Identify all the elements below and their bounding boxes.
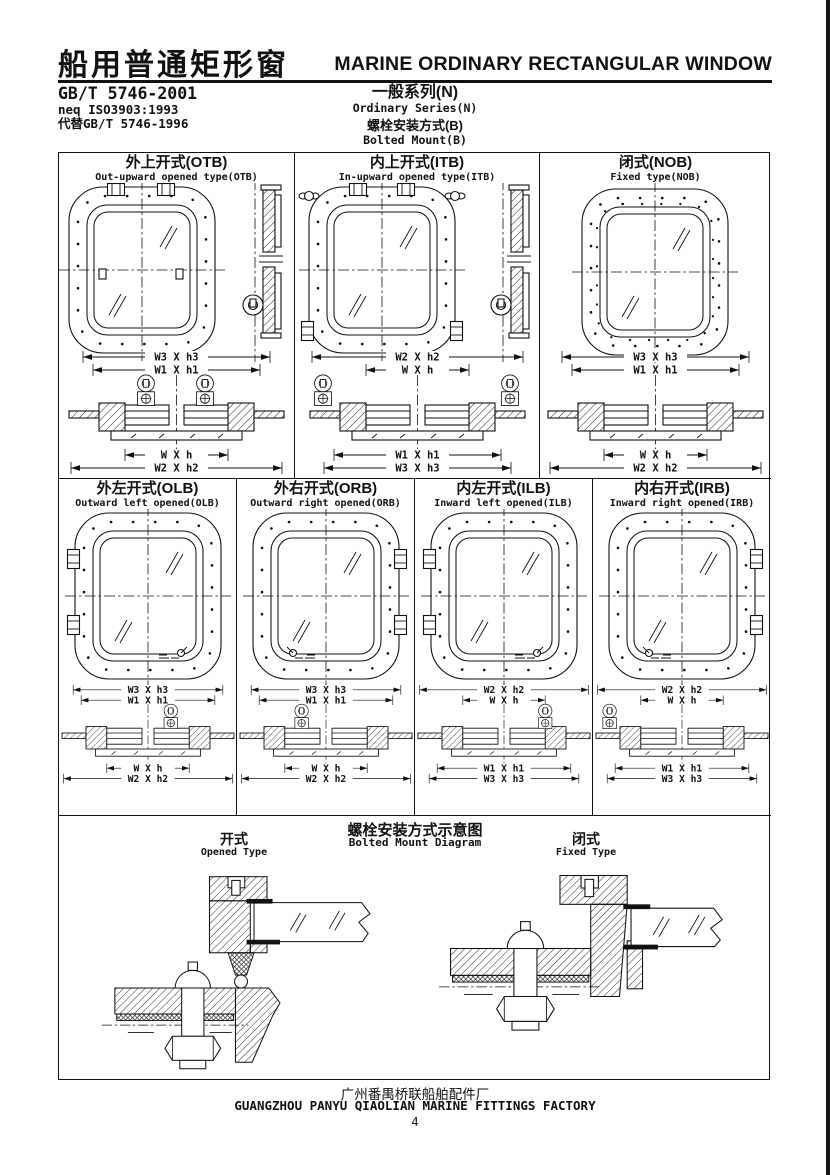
side-hinge-icon xyxy=(751,549,763,568)
dim-label: W3 X h3 xyxy=(484,773,525,784)
section-view: W3 X h3 W1 X h1 W X h W2 X h2 xyxy=(69,351,284,475)
panel-title-en: Outward left opened(OLB) xyxy=(59,498,236,509)
panel-title-en: Outward right opened(ORB) xyxy=(237,498,414,509)
bulkhead-plate xyxy=(115,988,236,1014)
itb-drawing: W2 X h2 W X h W1 X h1 W3 X h3 xyxy=(295,183,539,475)
side-hinge-icon xyxy=(68,549,80,568)
panel-irb: 内右开式(IRB) Inward right opened(IRB) W2 X … xyxy=(593,479,771,816)
section-view: W3 X h3 W1 X h1 W X h W2 X h2 xyxy=(240,685,412,785)
panel-title-en: Inward right opened(IRB) xyxy=(593,498,771,509)
side-hinge-icon xyxy=(395,549,407,568)
panel-title-cn: 内上开式(ITB) xyxy=(295,155,539,172)
panel-orb: 外右开式(ORB) Outward right opened(ORB) W3 X… xyxy=(237,479,415,816)
panel-title-cn: 内左开式(ILB) xyxy=(415,481,592,498)
mount-type-cn: 螺栓安装方式(B) xyxy=(300,119,530,134)
dim-label: W2 X h2 xyxy=(128,773,168,784)
eye-bolt-clamp xyxy=(138,374,155,405)
dim-label: W3 X h3 xyxy=(395,462,439,474)
panel-ilb: 内左开式(ILB) Inward left opened(ILB) W2 X h… xyxy=(415,479,593,816)
fixed-type-label-cn: 闭式 xyxy=(506,831,666,847)
page-title-en: MARINE ORDINARY RECTANGULAR WINDOW xyxy=(330,53,772,76)
eye-bolt-clamp xyxy=(502,374,519,405)
dim-label: W2 X h2 xyxy=(484,685,524,696)
standards-block: GB/T 5746-2001 neq ISO3903:1993 代替GB/T 5… xyxy=(58,85,197,131)
eye-bolt-clamp xyxy=(603,704,616,728)
side-hinge-icon xyxy=(395,615,407,634)
standard-line-3: 代替GB/T 5746-1996 xyxy=(58,117,197,131)
eye-bolt-clamp xyxy=(295,704,308,728)
glass-pane xyxy=(254,903,370,942)
glass-seal xyxy=(623,904,650,909)
panel-mount-diagram: 螺栓安装方式示意图 Bolted Mount Diagram 开式 Opened… xyxy=(59,816,771,1081)
dim-label: W3 X h3 xyxy=(306,685,347,696)
dim-label: W1 X h1 xyxy=(662,763,703,774)
series-block: 一般系列(N) Ordinary Series(N) 螺栓安装方式(B) Bol… xyxy=(300,84,530,147)
glass-seal xyxy=(623,945,658,950)
page-number: 4 xyxy=(0,1115,830,1129)
dim-label: W2 X h2 xyxy=(395,351,439,363)
fixed-type-label-en: Fixed Type xyxy=(506,847,666,859)
ilb-drawing: W2 X h2 W X h W1 X h1 W3 X h3 xyxy=(415,509,593,786)
side-hinge-icon xyxy=(751,615,763,634)
mount-type-en: Bolted Mount(B) xyxy=(300,134,530,147)
wing-nut-icon xyxy=(445,191,465,200)
fixed-type-diagram xyxy=(431,864,736,1056)
panel-title-en: In-upward opened type(ITB) xyxy=(295,172,539,183)
dim-label: W1 X h1 xyxy=(154,364,198,376)
opened-type-label: 开式 Opened Type xyxy=(154,831,314,859)
panel-otb: 外上开式(OTB) Out-upward opened type(OTB) W3… xyxy=(59,153,295,479)
panel-nob: 闭式(NOB) Fixed type(NOB) W3 X h3 W1 X h1 xyxy=(540,153,771,479)
panel-title-cn: 闭式(NOB) xyxy=(540,155,771,172)
glass-pane xyxy=(631,908,722,946)
opened-type-label-en: Opened Type xyxy=(154,847,314,859)
panel-title-cn: 外上开式(OTB) xyxy=(59,155,294,172)
dim-label: W2 X h2 xyxy=(633,462,677,474)
document-page: 船用普通矩形窗 MARINE ORDINARY RECTANGULAR WIND… xyxy=(0,0,830,1175)
panel-title-en: Inward left opened(ILB) xyxy=(415,498,592,509)
scan-edge-artifact xyxy=(826,0,830,1175)
dim-label: W X h xyxy=(640,449,672,461)
dim-label: W2 X h2 xyxy=(306,773,346,784)
side-hinge-icon xyxy=(68,615,80,634)
dim-label: W3 X h3 xyxy=(633,351,677,363)
panel-itb: 内上开式(ITB) In-upward opened type(ITB) W2 … xyxy=(295,153,540,479)
series-title-cn: 一般系列(N) xyxy=(300,84,530,102)
side-hinge-icon xyxy=(424,615,436,634)
opened-type-label-cn: 开式 xyxy=(154,831,314,847)
dim-label: W2 X h2 xyxy=(662,685,702,696)
dim-label: W X h xyxy=(161,449,193,461)
dim-label: W X h xyxy=(312,763,341,774)
section-view: W3 X h3 W1 X h1 W X h W2 X h2 xyxy=(62,685,234,785)
hinge-pin xyxy=(235,975,248,988)
dim-label: W1 X h1 xyxy=(395,449,439,461)
panel-title-cn: 外左开式(OLB) xyxy=(59,481,236,498)
gasket-strip xyxy=(117,1014,234,1020)
dim-label: W X h xyxy=(402,364,434,376)
eye-bolt-clamp xyxy=(164,704,177,728)
fixed-type-label: 闭式 Fixed Type xyxy=(506,831,666,859)
footer-factory-en: GUANGZHOU PANYU QIAOLIAN MARINE FITTINGS… xyxy=(0,1098,830,1113)
header-rule xyxy=(58,80,772,83)
section-view: W3 X h3 W1 X h1 W X h W2 X h2 xyxy=(548,351,763,475)
page-title-cn: 船用普通矩形窗 xyxy=(58,40,289,84)
panel-olb: 外左开式(OLB) Outward left opened(OLB) W3 X … xyxy=(59,479,237,816)
eye-bolt-clamp xyxy=(315,374,332,405)
opened-type-diagram xyxy=(89,860,394,1078)
section-view: W2 X h2 W X h W1 X h1 W3 X h3 xyxy=(310,351,525,475)
glass-seal xyxy=(247,940,280,945)
drawing-sheet: 外上开式(OTB) Out-upward opened type(OTB) W3… xyxy=(58,152,770,1080)
panel-title-cn: 外右开式(ORB) xyxy=(237,481,414,498)
side-section-view xyxy=(491,183,531,362)
dim-label: W1 X h1 xyxy=(484,763,525,774)
orb-drawing: W3 X h3 W1 X h1 W X h W2 X h2 xyxy=(237,509,415,786)
panel-title-en: Fixed type(NOB) xyxy=(540,172,771,183)
panel-title-cn: 内右开式(IRB) xyxy=(593,481,771,498)
dim-label: W1 X h1 xyxy=(633,364,677,376)
otb-drawing: W3 X h3 W1 X h1 W X h W2 X h2 xyxy=(59,183,294,475)
side-hinge-icon xyxy=(424,549,436,568)
top-hinge-icon xyxy=(108,183,125,195)
glass-seal xyxy=(247,899,273,904)
olb-drawing: W3 X h3 W1 X h1 W X h W2 X h2 xyxy=(59,509,237,786)
top-hinge-icon xyxy=(158,183,175,195)
section-view: W2 X h2 W X h W1 X h1 W3 X h3 xyxy=(596,685,768,785)
irb-drawing: W2 X h2 W X h W1 X h1 W3 X h3 xyxy=(593,509,771,786)
dim-label: W3 X h3 xyxy=(154,351,198,363)
standard-line-2: neq ISO3903:1993 xyxy=(58,103,197,117)
side-section-view xyxy=(243,183,283,362)
eye-bolt-clamp xyxy=(197,374,214,405)
nob-drawing: W3 X h3 W1 X h1 W X h W2 X h2 xyxy=(540,183,770,475)
dim-label: W2 X h2 xyxy=(154,462,198,474)
wing-nut-icon xyxy=(299,191,319,200)
eye-bolt-clamp xyxy=(538,704,551,728)
dim-label: W X h xyxy=(134,763,163,774)
section-view: W2 X h2 W X h W1 X h1 W3 X h3 xyxy=(418,685,590,785)
standard-line-1: GB/T 5746-2001 xyxy=(58,85,197,103)
dim-label: W3 X h3 xyxy=(662,773,703,784)
dim-label: W3 X h3 xyxy=(128,685,169,696)
series-title-en: Ordinary Series(N) xyxy=(300,102,530,115)
rubber-gasket xyxy=(228,953,254,975)
panel-title-en: Out-upward opened type(OTB) xyxy=(59,172,294,183)
